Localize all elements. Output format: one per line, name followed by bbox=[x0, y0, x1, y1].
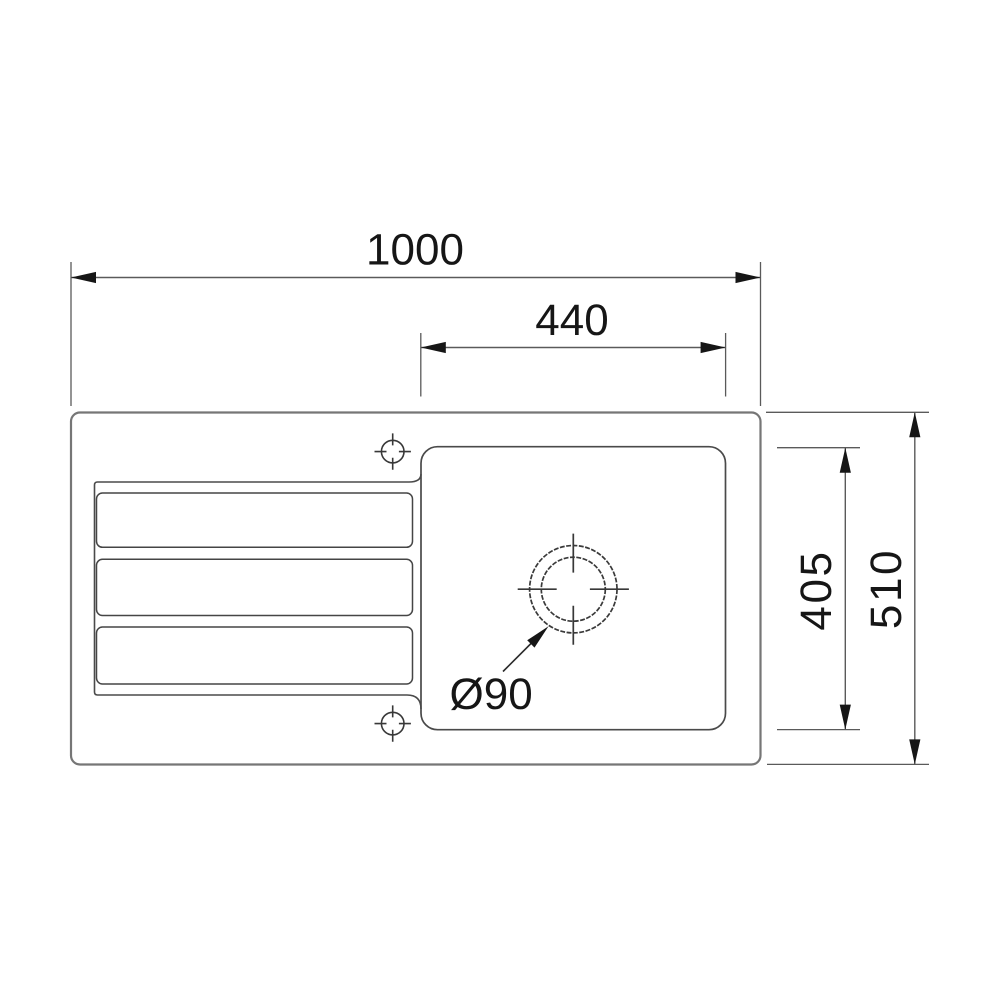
svg-text:Ø90: Ø90 bbox=[450, 670, 533, 719]
svg-text:510: 510 bbox=[862, 548, 911, 629]
svg-text:1000: 1000 bbox=[366, 226, 464, 275]
svg-text:440: 440 bbox=[535, 296, 608, 345]
svg-text:405: 405 bbox=[792, 549, 841, 630]
